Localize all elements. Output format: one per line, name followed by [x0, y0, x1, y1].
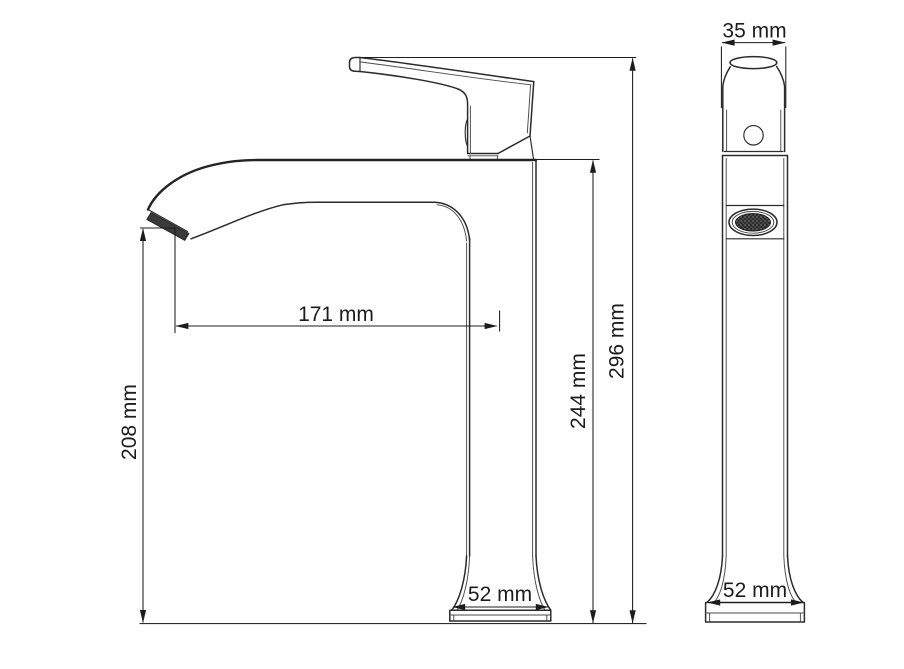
base-side [450, 610, 551, 621]
spout-and-column-side [147, 160, 551, 611]
front-view: 35 mm 52 mm [706, 20, 805, 623]
base-front [706, 603, 805, 623]
handle-side [350, 58, 534, 160]
dim-label-spout-reach: 171 mm [298, 303, 374, 326]
dim-base-width-side: 52 mm [452, 583, 549, 610]
dim-body-height: 244 mm [536, 160, 600, 624]
dim-spout-reach: 171 mm [175, 228, 500, 333]
dim-total-height: 296 mm [362, 58, 636, 624]
dim-label-spout-height: 208 mm [118, 384, 141, 460]
handle-front [723, 57, 785, 152]
handle-button [744, 126, 763, 145]
dim-label-body-height: 244 mm [567, 353, 590, 429]
body-front [707, 156, 803, 604]
dim-label-base-width-side: 52 mm [468, 583, 532, 606]
dim-label-base-width-front: 52 mm [723, 579, 787, 602]
dim-spout-height: 208 mm [118, 228, 175, 623]
dim-label-handle-width: 35 mm [722, 20, 786, 43]
faucet-technical-drawing: 208 mm 171 mm 244 mm 296 mm [0, 0, 904, 669]
dim-label-total-height: 296 mm [606, 303, 629, 379]
side-view: 208 mm 171 mm 244 mm 296 mm [118, 58, 646, 624]
aerator-side [147, 213, 189, 241]
aerator-front [729, 209, 777, 235]
